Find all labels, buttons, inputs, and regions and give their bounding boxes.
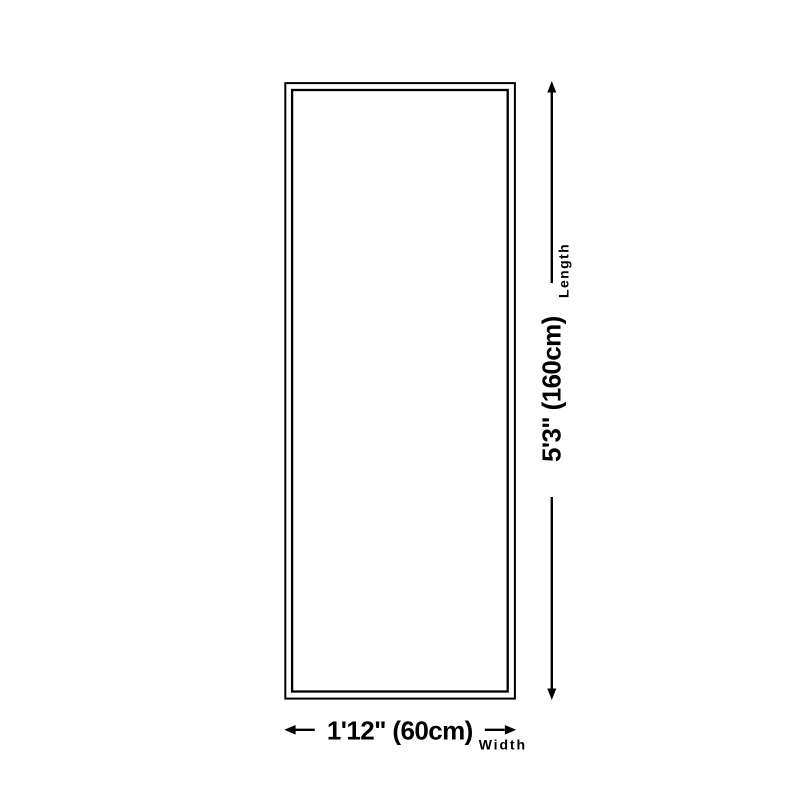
svg-text:Length: Length — [556, 243, 572, 298]
svg-text:Width: Width — [479, 736, 527, 752]
svg-text:1'12" (60cm): 1'12" (60cm) — [327, 716, 473, 746]
svg-text:5'3" (160cm): 5'3" (160cm) — [537, 316, 567, 462]
